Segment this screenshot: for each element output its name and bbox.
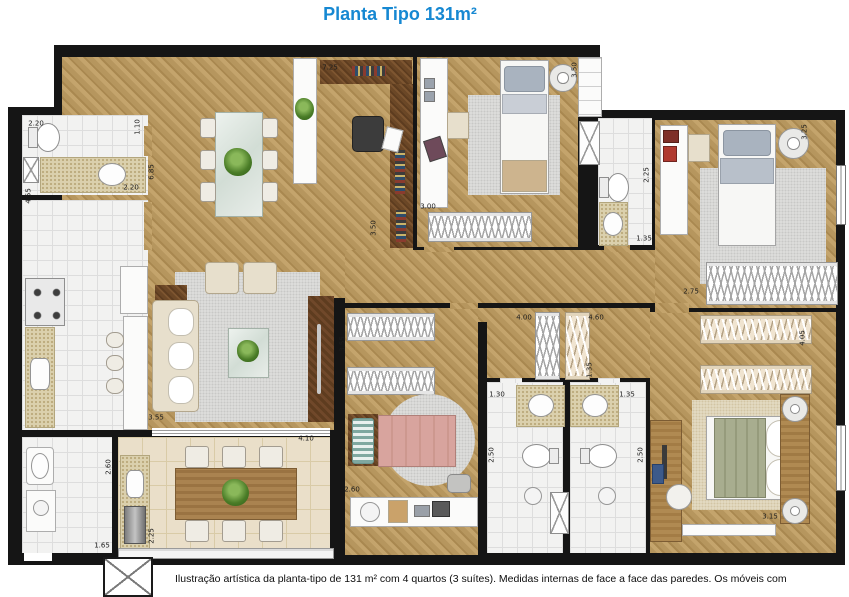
dimension-label: 2.60 xyxy=(106,459,113,475)
dimension-label: 2.50 xyxy=(638,447,645,463)
dimension-label: 3.50 xyxy=(572,62,579,78)
dimension-label: 2.60 xyxy=(344,487,360,494)
dimension-label: 3.00 xyxy=(420,204,436,211)
dimension-label: 4.10 xyxy=(298,436,314,443)
dimension-label: 2.25 xyxy=(149,528,156,544)
dimension-label: 4.05 xyxy=(800,330,807,346)
dimension-label: 3.50 xyxy=(371,220,378,236)
dimension-label: 1.35 xyxy=(587,362,594,378)
dimension-label: 1.35 xyxy=(619,392,635,399)
dimension-label: 4.55 xyxy=(26,188,33,204)
floor-plan-page: Planta Tipo 131m² xyxy=(0,0,849,597)
dimension-labels: 7.252.201.104.552.206.853.503.003.503.25… xyxy=(0,0,849,597)
dimension-label: 2.20 xyxy=(28,121,44,128)
dimension-label: 6.85 xyxy=(149,164,156,180)
dimension-label: 2.20 xyxy=(123,185,139,192)
dimension-label: 4.60 xyxy=(588,315,604,322)
dimension-label: 1.65 xyxy=(94,543,110,550)
dimension-label: 4.00 xyxy=(516,315,532,322)
dimension-label: 3.25 xyxy=(802,124,809,140)
dimension-label: 1.35 xyxy=(636,236,652,243)
dimension-label: 3.55 xyxy=(148,415,164,422)
plan-caption: Ilustração artística da planta-tipo de 1… xyxy=(175,573,847,585)
dimension-label: 2.75 xyxy=(683,289,699,296)
dimension-label: 7.25 xyxy=(322,65,338,72)
dimension-label: 3.15 xyxy=(762,514,778,521)
dimension-label: 2.25 xyxy=(644,167,651,183)
dimension-label: 3.55 xyxy=(340,336,347,352)
dimension-label: 1.10 xyxy=(135,119,142,135)
dimension-label: 1.30 xyxy=(489,392,505,399)
dimension-label: 2.50 xyxy=(489,447,496,463)
floor-plan: 7.252.201.104.552.206.853.503.003.503.25… xyxy=(0,0,849,597)
